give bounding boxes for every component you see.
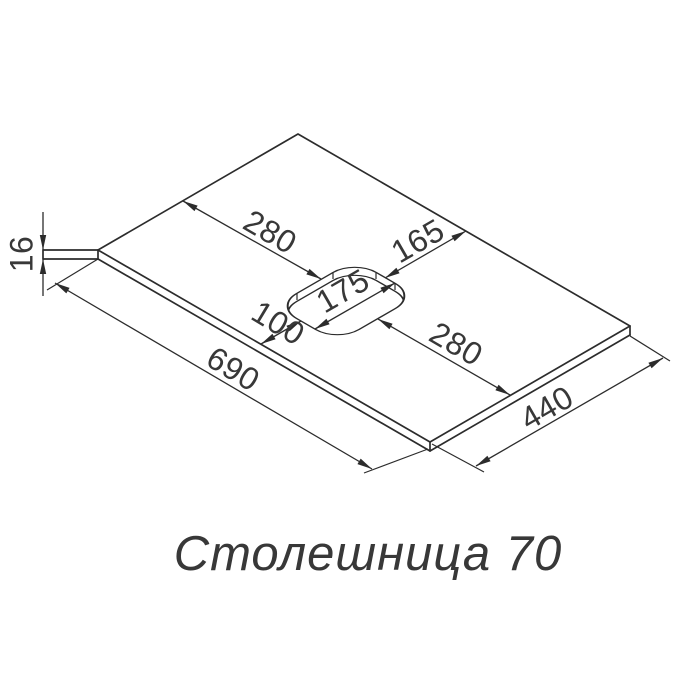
dimension-thickness-16: 16 [3,212,43,296]
extension-line-west [47,259,98,290]
technical-drawing: 280 165 175 100 280 690 440 16 Столешниц… [0,0,700,700]
drawing-title: Столешница 70 [174,527,563,581]
dimension-label-690: 690 [201,339,267,398]
extension-line-east [630,336,670,361]
thickness-tab [43,250,98,259]
extension-line-south-right [432,444,484,472]
dimension-label-16: 16 [3,236,39,273]
extension-line-south-left [364,449,428,473]
